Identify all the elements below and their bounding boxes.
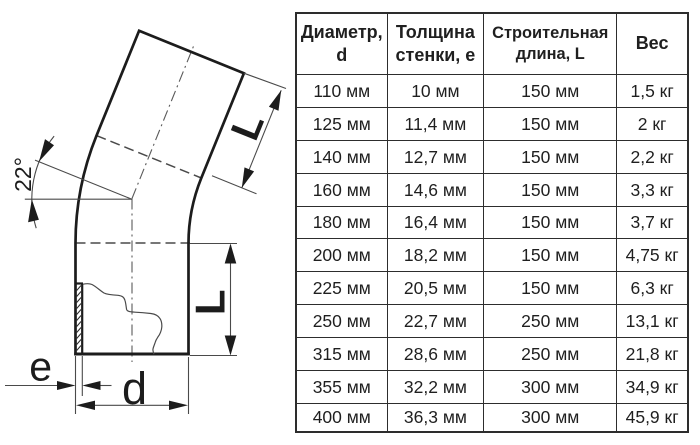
svg-text:d: d xyxy=(122,363,147,414)
svg-text:L: L xyxy=(223,107,273,146)
svg-text:e: e xyxy=(29,344,52,390)
svg-text:L: L xyxy=(187,289,234,315)
svg-text:22°: 22° xyxy=(10,157,36,192)
